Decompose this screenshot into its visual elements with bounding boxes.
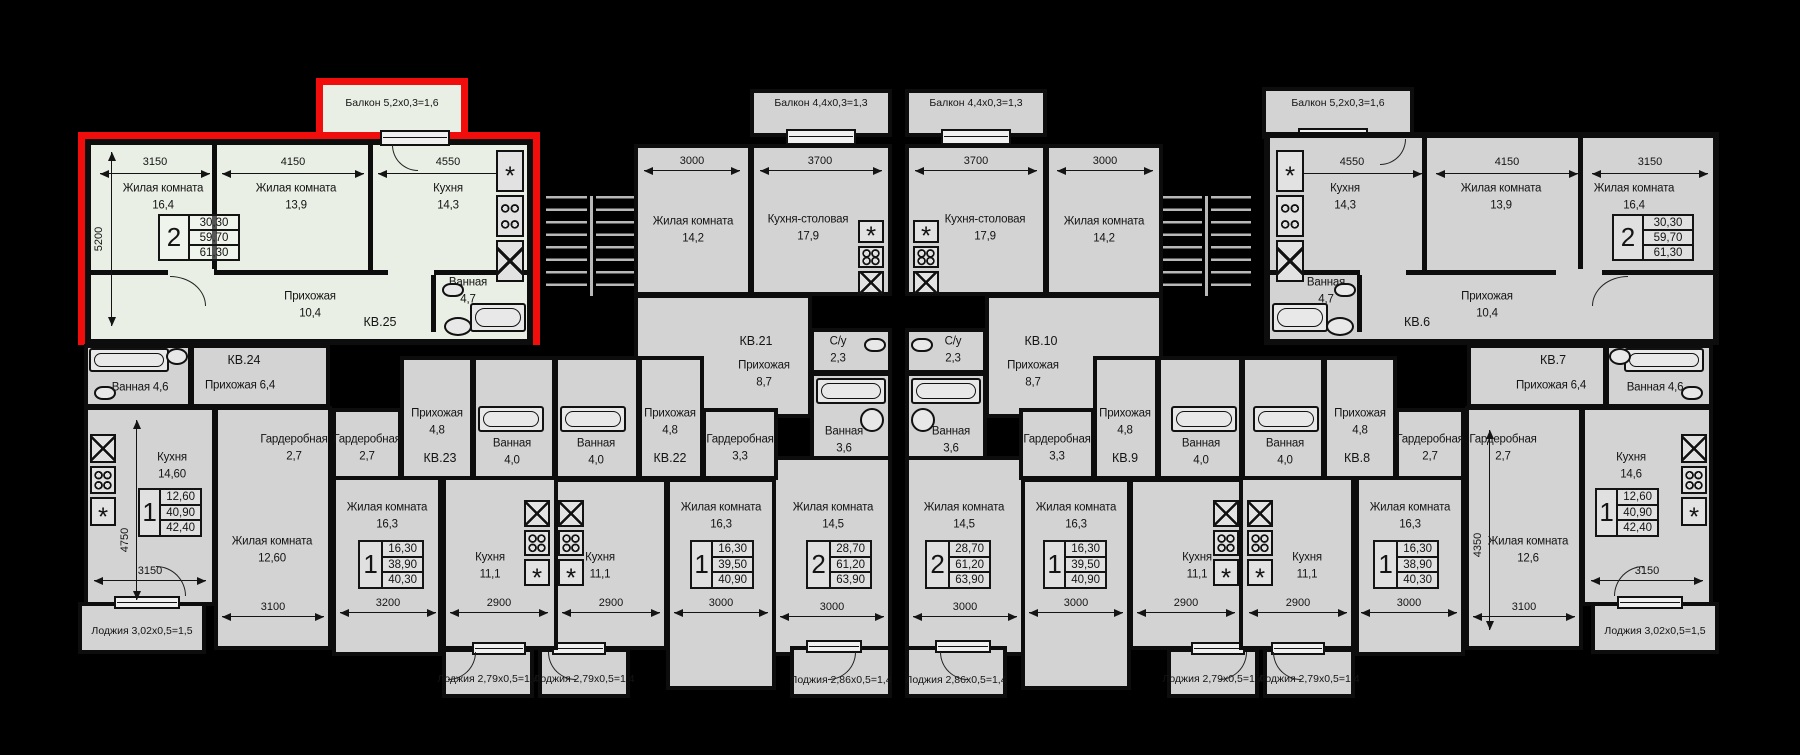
- bathtub-icon: [560, 406, 626, 432]
- star-icon: [858, 220, 884, 243]
- kv8-number: КВ.8: [1344, 451, 1370, 465]
- star-icon: [1213, 559, 1239, 586]
- kv10-number: КВ.10: [1025, 334, 1058, 348]
- kv7-number: КВ.7: [1540, 353, 1566, 367]
- toilet-icon: [911, 338, 933, 352]
- kv25-balcony-label: Балкон 5,2х0,3=1,6: [345, 97, 438, 109]
- bathtub-icon: [816, 378, 886, 404]
- kv25-room-living2-label: Жилая комната 13,9: [256, 180, 336, 213]
- kv23-number: КВ.23: [424, 451, 457, 465]
- kv21-stats: 2 28,70 61,20 63,90: [806, 540, 872, 589]
- sink-icon: [444, 317, 472, 336]
- bathtub-icon: [470, 303, 526, 332]
- kv8-kitchen-appliances: [1247, 500, 1273, 586]
- kitchen-sink-icon: [90, 434, 116, 463]
- kitchen-sink-icon: [1213, 500, 1239, 527]
- stove-burners-icon: [558, 530, 584, 557]
- kitchen-sink-icon: [1276, 240, 1304, 282]
- kitchen-sink-icon: [524, 500, 550, 527]
- toilet-icon: [1681, 386, 1703, 400]
- kv6-room-living1-label: Жилая комната 16,4: [1594, 180, 1674, 213]
- stove-burners-icon: [90, 466, 116, 495]
- bathtub-icon: [478, 406, 544, 432]
- kitchen-sink-icon: [1681, 434, 1707, 463]
- kv23-stats: 1 16,30 38,90 40,30: [358, 540, 424, 589]
- stove-burners-icon: [524, 530, 550, 557]
- sink-icon: [166, 348, 188, 365]
- bathtub-icon: [1171, 406, 1237, 432]
- floorplan: Балкон 5,2х0,3=1,6 Жилая комната 16,4 2 …: [0, 0, 1800, 755]
- star-icon: [1681, 497, 1707, 526]
- kv9-stats: 1 16,30 39,50 40,90: [1043, 540, 1107, 589]
- kv6-kitchen-appliances: [1276, 150, 1304, 282]
- kv9-kitchen-appliances: [1213, 500, 1239, 586]
- star-icon: [496, 150, 524, 192]
- kv10-balcony-window-icon: [941, 129, 1011, 145]
- kv24-number: КВ.24: [228, 353, 261, 367]
- star-icon: [558, 559, 584, 586]
- kv25-number: КВ.25: [364, 315, 397, 329]
- kv7-stats: 1 12,60 40,90 42,40: [1595, 488, 1659, 537]
- star-icon: [1276, 150, 1304, 192]
- kv24-kitchen-appliances: [90, 434, 116, 526]
- stove-burners-icon: [913, 246, 939, 269]
- staircase-right: [1161, 196, 1251, 296]
- kv6-room-hall-label: Прихожая 10,4: [1461, 288, 1513, 321]
- bathtub-icon: [89, 348, 169, 372]
- kv23-loggia-window-icon: [472, 642, 526, 655]
- kv23-kitchen-appliances: [524, 500, 550, 586]
- kv10-kitchen-appliances: [913, 220, 939, 294]
- sink-icon: [860, 408, 884, 432]
- staircase-left: [546, 196, 636, 296]
- kv6-stats: 2 30,30 59,70 61,30: [1612, 214, 1694, 261]
- kv7-dim-depth: [1489, 430, 1490, 630]
- toilet-icon: [442, 283, 464, 297]
- kv6-room-living2-label: Жилая комната 13,9: [1461, 180, 1541, 213]
- kv6-room-kitchen-label: Кухня 14,3: [1330, 180, 1360, 213]
- kv24-loggia-window-icon: [114, 596, 180, 609]
- kv25-dim-living1: [100, 173, 210, 174]
- kitchen-sink-icon: [913, 271, 939, 294]
- kitchen-sink-icon: [1247, 500, 1273, 527]
- kitchen-sink-icon: [558, 500, 584, 527]
- kv25-balcony-window-icon: [380, 130, 450, 146]
- star-icon: [913, 220, 939, 243]
- bathtub-icon: [1624, 348, 1704, 372]
- kv8-stats: 1 16,30 38,90 40,30: [1373, 540, 1439, 589]
- star-icon: [90, 497, 116, 526]
- sink-icon: [1326, 317, 1354, 336]
- stove-burners-icon: [1247, 530, 1273, 557]
- star-icon: [1247, 559, 1273, 586]
- toilet-icon: [1334, 283, 1356, 297]
- stove-burners-icon: [858, 246, 884, 269]
- kv21-balcony-window-icon: [786, 129, 856, 145]
- kv22-kitchen-appliances: [558, 500, 584, 586]
- kv25-room-hall-label: Прихожая 10,4: [284, 288, 336, 321]
- kv21-kitchen-appliances: [858, 220, 884, 294]
- star-icon: [524, 559, 550, 586]
- bathtub-icon: [1253, 406, 1319, 432]
- toilet-icon: [864, 338, 886, 352]
- stove-burners-icon: [1213, 530, 1239, 557]
- stove-burners-icon: [496, 195, 524, 237]
- kv22-stats: 1 16,30 39,50 40,90: [690, 540, 754, 589]
- kv25-room-kitchen-label: Кухня 14,3: [433, 180, 463, 213]
- kv25-stats: 2 30,30 59,70 61,30: [158, 214, 240, 261]
- kv25-dim-living2: [222, 173, 364, 174]
- kv22-number: КВ.22: [654, 451, 687, 465]
- sink-icon: [1609, 348, 1631, 365]
- kv25-room-living1-label: Жилая комната 16,4: [123, 180, 203, 213]
- stove-burners-icon: [1681, 466, 1707, 495]
- bathtub-icon: [1272, 303, 1328, 332]
- kv7-kitchen-appliances: [1681, 434, 1707, 526]
- kv9-number: КВ.9: [1112, 451, 1138, 465]
- kv6-number: КВ.6: [1404, 315, 1430, 329]
- kv7-room-hall[interactable]: [1467, 344, 1607, 408]
- kv7-loggia-window-icon: [1617, 596, 1683, 609]
- stove-burners-icon: [1276, 195, 1304, 237]
- kv25-dim-depth: [111, 152, 112, 326]
- kv10-stats: 2 28,70 61,20 63,90: [925, 540, 991, 589]
- bathtub-icon: [911, 378, 981, 404]
- kitchen-sink-icon: [496, 240, 524, 282]
- kv25-kitchen-appliances: [496, 150, 524, 282]
- kv21-number: КВ.21: [740, 334, 773, 348]
- kitchen-sink-icon: [858, 271, 884, 294]
- kv24-stats: 1 12,60 40,90 42,40: [138, 488, 202, 537]
